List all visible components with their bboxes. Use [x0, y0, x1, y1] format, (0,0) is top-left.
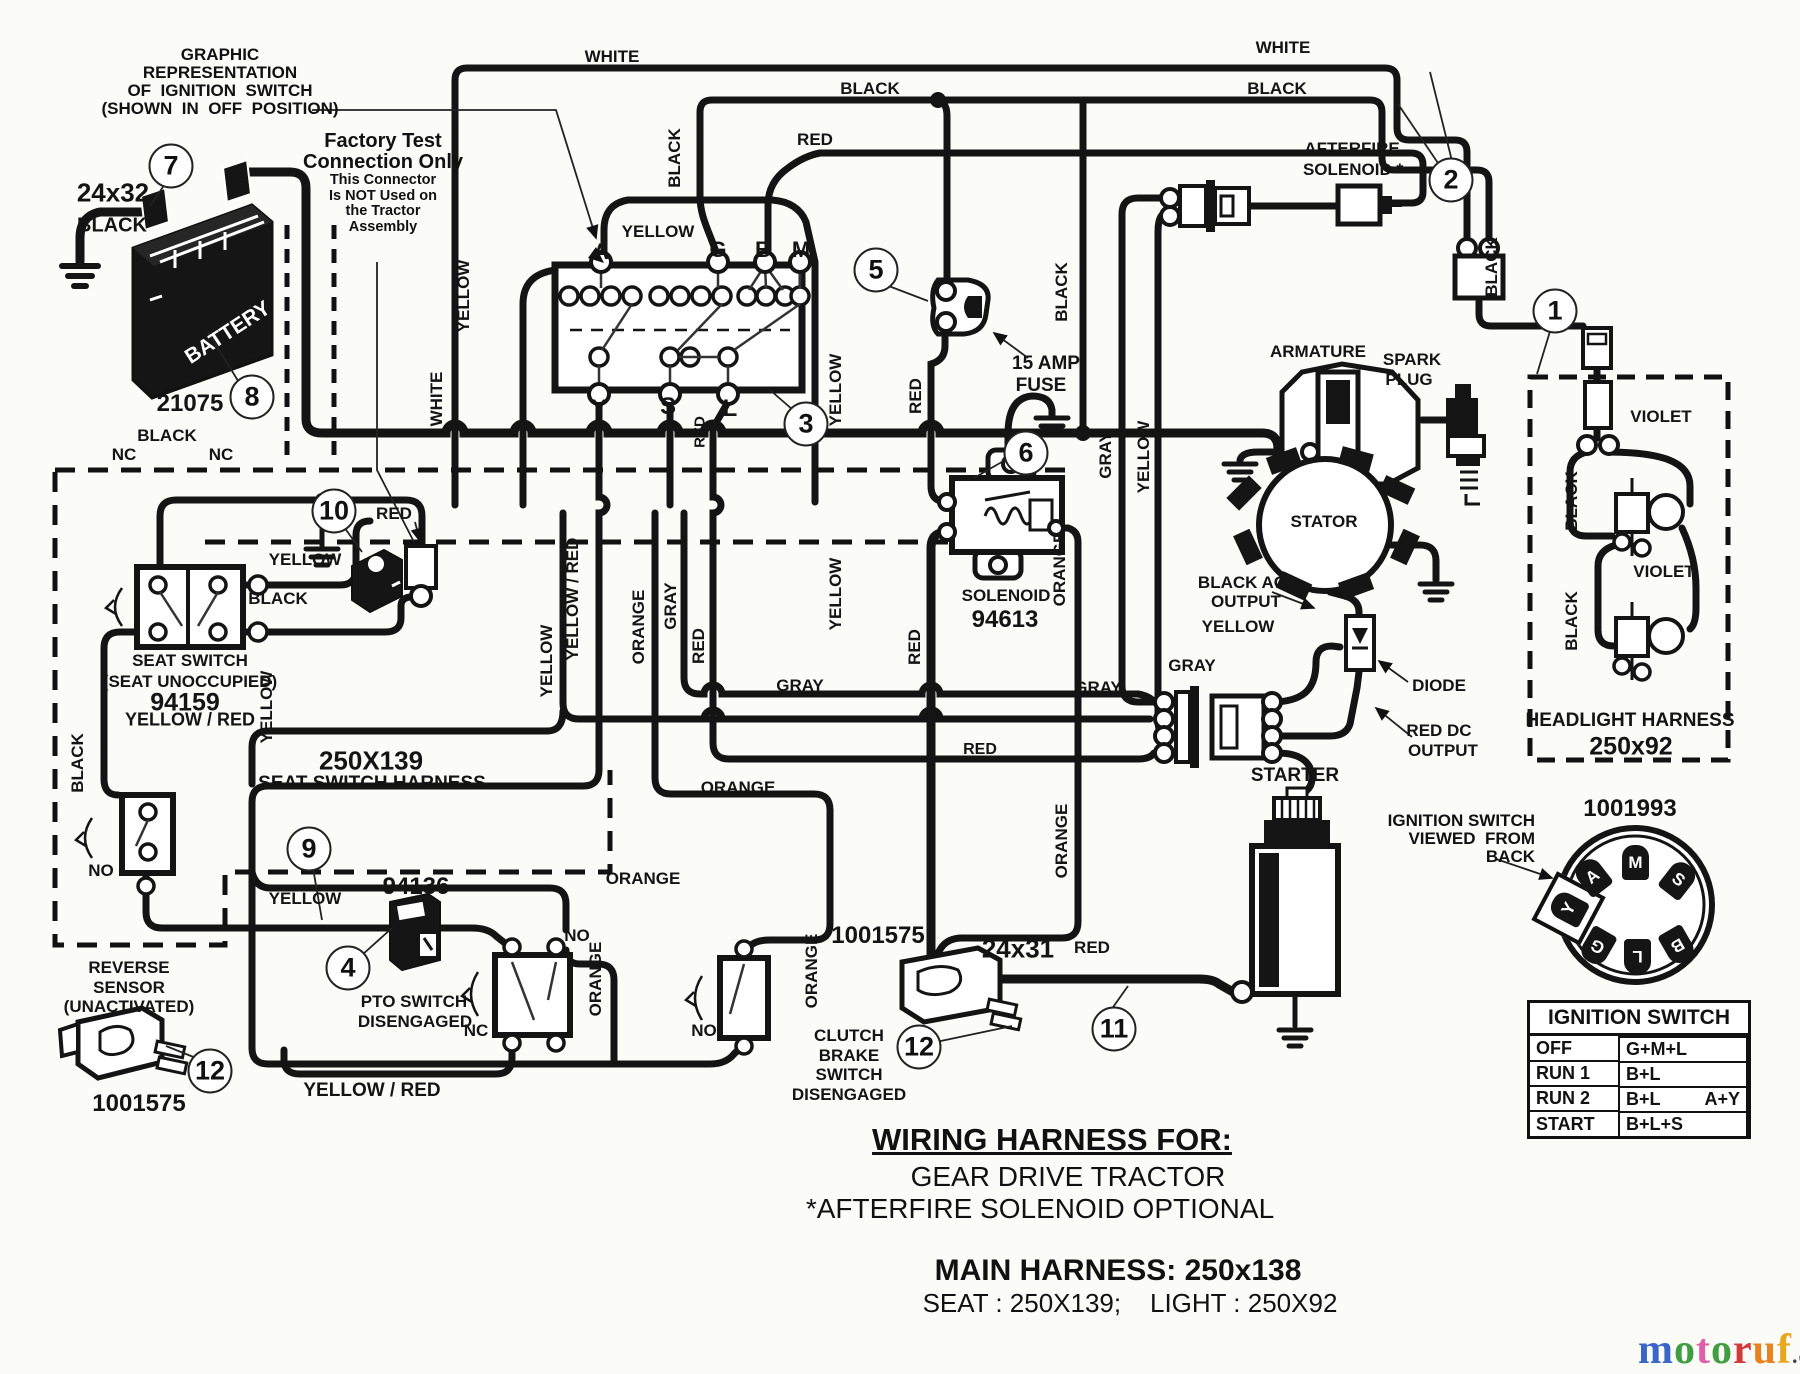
note-line: This Connector [330, 173, 436, 189]
switch-circuit: B+L+S [1620, 1111, 1748, 1136]
wire-label: GRAY [1168, 656, 1216, 676]
wire-label: AFTERFIRE [1304, 139, 1399, 159]
note-line: Connection Only [303, 152, 463, 173]
note-line: IGNITION SWITCH [1388, 812, 1535, 830]
callout-10: 10 [312, 489, 357, 534]
wire-label: NC [112, 445, 137, 465]
vertical-wire-label: BLACK [665, 128, 685, 188]
table-header: IGNITION SWITCH [1529, 1002, 1750, 1035]
wire-label: RED [797, 130, 833, 150]
callout-1: 1 [1533, 289, 1578, 334]
callout-5: 5 [854, 248, 899, 293]
wire-label: (UNACTIVATED) [64, 997, 195, 1017]
switch-position: RUN 2 [1529, 1086, 1620, 1111]
rear-terminal-L: L [1624, 939, 1651, 974]
wire-label: Y [591, 395, 607, 423]
vertical-wire-label: ORANGE [802, 934, 822, 1009]
callout-8: 8 [230, 375, 275, 420]
vertical-wire-label: ORANGE [1052, 804, 1072, 879]
bundle-connector-graphic [1155, 686, 1281, 768]
wire-label: 250x92 [1589, 733, 1672, 762]
seat-light-harness-line: SEAT : 250X139; LIGHT : 250X92 [923, 1288, 1338, 1319]
wire-label: YELLOW [622, 222, 695, 242]
note-line: REPRESENTATION [143, 64, 297, 82]
wire-label: RED [376, 504, 412, 524]
wire-label: SOLENOID [962, 586, 1051, 606]
wire-label: REVERSE [88, 958, 169, 978]
wire-label: 24x32 [77, 178, 149, 209]
wire-label: BLACK AC [1198, 573, 1286, 593]
wire-label: ORANGE [701, 778, 776, 798]
wire-label: PTO SWITCH [361, 992, 467, 1012]
wire-label: BLACK [77, 215, 147, 238]
headlight-bulb-1 [1614, 478, 1683, 556]
callout-6: 6 [1004, 431, 1049, 476]
wire-label: GRAY [1074, 678, 1122, 698]
wire-label: DIODE [1412, 676, 1466, 696]
vertical-wire-label: RED [689, 628, 709, 664]
callout-11: 11 [1092, 1007, 1137, 1052]
wire-label: OUTPUT [1408, 741, 1478, 761]
switch-position: OFF [1529, 1035, 1620, 1062]
wire-label: NO [88, 861, 114, 881]
headlight-bulb-2 [1614, 602, 1683, 680]
wire-label: 1001575 [831, 922, 924, 950]
vertical-wire-label: YELLOW [826, 558, 846, 631]
starter-graphic [1232, 788, 1338, 1002]
wire-label: NO [691, 1021, 717, 1041]
wire-label: CLUTCH [814, 1026, 884, 1046]
vertical-wire-label: YELLOW [1134, 421, 1154, 494]
vertical-wire-label: BLACK [1562, 471, 1582, 531]
wire-label: STARTER [1251, 765, 1339, 787]
harness-subtitle-2: *AFTERFIRE SOLENOID OPTIONAL [806, 1193, 1274, 1225]
wire-label: BLACK [137, 426, 197, 446]
motoruf-watermark: motoruf.de [1638, 1326, 1800, 1374]
diode-graphic [1346, 616, 1374, 670]
wire-label: SEAT SWITCH HARNESS [258, 773, 486, 795]
wire-label: HEADLIGHT HARNESS [1525, 710, 1734, 732]
switch-circuit: B+L [1620, 1061, 1748, 1086]
wire-label: ARMATURE [1270, 342, 1366, 362]
note-line: Is NOT Used on [329, 189, 437, 205]
wire-label: SEAT SWITCH [132, 651, 248, 671]
vertical-wire-label: GRAY [661, 582, 681, 630]
rear-terminal-M: M [1622, 845, 1649, 880]
callout-12: 12 [188, 1049, 233, 1094]
wire-label: 94613 [972, 606, 1039, 634]
callout-4: 4 [326, 946, 371, 991]
watermark-letter: f [1777, 1327, 1792, 1373]
note-line: GRAPHIC [181, 46, 259, 64]
wire-label: M [792, 237, 810, 263]
vertical-wire-label: ORANGE [1050, 532, 1070, 607]
wire-label: YELLOW [269, 889, 342, 909]
ignition-switch-graphic [555, 247, 810, 404]
wire-label: YELLOW [269, 550, 342, 570]
harness-subtitle-1: GEAR DRIVE TRACTOR [911, 1161, 1226, 1193]
ignition-back-note: IGNITION SWITCH VIEWED FROM BACK [1380, 812, 1535, 866]
vertical-wire-label: WHITE [427, 372, 447, 427]
callout-2: 2 [1429, 158, 1474, 203]
table-row: RUN 2B+LA+Y [1529, 1086, 1750, 1111]
wire-label: 250X139 [319, 746, 423, 777]
wire-label: PLUG [1385, 370, 1432, 390]
wire-label: ORANGE [606, 869, 681, 889]
wire-label: 24x31 [982, 934, 1054, 965]
wire-label: GRAY [776, 676, 824, 696]
wire-gray-bundle [684, 513, 1154, 702]
wire-label: NC [464, 1021, 489, 1041]
wire-label: DISENGAGED [792, 1085, 906, 1105]
wire-label: WHITE [1256, 38, 1311, 58]
wire-label: YELLOW / RED [303, 1080, 440, 1102]
wiring-diagram-page: WHITEBLACKWHITEBLACKREDYELLOW24x32BLACKA… [0, 0, 1800, 1374]
watermark-letter: u [1753, 1327, 1777, 1373]
vertical-wire-label: BLACK [1482, 237, 1502, 297]
wire-yellow-afterfire [1158, 214, 1163, 735]
wire-label: 1001575 [92, 1090, 185, 1118]
headlight-harness-boundary [1530, 377, 1728, 760]
watermark-letter: o [1674, 1327, 1696, 1373]
vertical-wire-label: BLACK [1562, 591, 1582, 651]
callout-7: 7 [149, 144, 194, 189]
wire-label: BLACK [840, 79, 900, 99]
note-line: Factory Test [324, 131, 441, 152]
wire-label: NC [209, 445, 234, 465]
wire-label: STATOR [1290, 512, 1357, 532]
factory-test-note: Factory Test Connection Only This Connec… [308, 131, 458, 235]
wire-label: RED DC [1406, 721, 1471, 741]
fuse-graphic [933, 280, 989, 334]
wire-label: L [723, 395, 738, 423]
switch-position: RUN 1 [1529, 1061, 1620, 1086]
wire-label: 94136 [383, 873, 450, 901]
vertical-wire-label: RED [692, 416, 709, 448]
switch-circuit: B+LA+Y [1620, 1086, 1748, 1111]
wire-label: BRAKE [819, 1046, 879, 1066]
wire-label: SENSOR [93, 978, 165, 998]
vertical-wire-label: RED [906, 378, 926, 414]
wire-label: 15 AMP [1012, 353, 1080, 375]
wire-label: SWITCH [815, 1065, 882, 1085]
ignition-note: GRAPHIC REPRESENTATION OF IGNITION SWITC… [120, 46, 320, 118]
wire-label: B [755, 237, 771, 263]
wire-label: S [660, 393, 676, 421]
vertical-wire-label: GRAY [1096, 431, 1116, 479]
callout-9: 9 [287, 827, 332, 872]
wire-label: VIOLET [1633, 562, 1694, 582]
note-line: Assembly [349, 220, 418, 236]
wire-label: VIOLET [1630, 407, 1691, 427]
wire-label: RED [963, 741, 997, 759]
wire-label: FUSE [1016, 375, 1067, 397]
note-line: the Tractor [346, 204, 421, 220]
wire-label: OUTPUT [1211, 592, 1281, 612]
table-row: OFFG+M+L [1529, 1035, 1750, 1062]
watermark-letter: m [1638, 1327, 1674, 1373]
table-row: STARTB+L+S [1529, 1111, 1750, 1138]
reverse-sensor-graphic [60, 1008, 187, 1078]
factory-test-connector-graphic [406, 546, 436, 606]
wire-label: RED [1074, 938, 1110, 958]
vertical-wire-label: ORANGE [629, 590, 649, 665]
wire-label: YELLOW [1202, 617, 1275, 637]
switch-position: START [1529, 1111, 1620, 1138]
vertical-wire-label: YELLOW / RED [563, 538, 583, 661]
spark-plug-graphic [1446, 384, 1484, 504]
harness-title: WIRING HARNESS FOR: [872, 1122, 1232, 1158]
vertical-wire-label: YELLOW [537, 625, 557, 698]
note-line: VIEWED FROM [1408, 830, 1535, 848]
callout-12: 12 [897, 1025, 942, 1070]
wire-label: WHITE [585, 47, 640, 67]
vertical-wire-label: YELLOW [257, 671, 277, 744]
note-line: BACK [1486, 848, 1535, 866]
vertical-wire-label: YELLOW [454, 260, 474, 333]
watermark-letter: o [1711, 1327, 1733, 1373]
wire-label: SPARK [1383, 350, 1441, 370]
note-line: OF IGNITION SWITCH [127, 82, 312, 100]
wire-label: BLACK [1247, 79, 1307, 99]
wire-label: SOLENOID * [1303, 160, 1403, 180]
wire-label: YELLOW / RED [125, 710, 255, 731]
watermark-letter: r [1733, 1327, 1753, 1373]
wire-label: A [593, 239, 609, 265]
vertical-wire-label: ORANGE [586, 942, 606, 1017]
vertical-wire-label: YELLOW [826, 354, 846, 427]
ignition-switch-table: IGNITION SWITCH OFFG+M+LRUN 1B+LRUN 2B+L… [1527, 1000, 1751, 1139]
switch-circuit: G+M+L [1620, 1036, 1748, 1061]
wire-label: DISENGAGED [358, 1012, 472, 1032]
main-harness-title: MAIN HARNESS: 250x138 [935, 1254, 1302, 1288]
vertical-wire-label: RED [905, 629, 925, 665]
wire-label: BLACK [248, 589, 308, 609]
wire-label: G [709, 237, 726, 263]
watermark-letter: t [1696, 1327, 1711, 1373]
callout-3: 3 [784, 402, 829, 447]
vertical-wire-label: BLACK [68, 733, 88, 793]
table-row: RUN 1B+L [1529, 1061, 1750, 1086]
vertical-wire-label: BLACK [1052, 262, 1072, 322]
wire-label: 21075 [157, 390, 224, 418]
pto-connector-graphic [390, 894, 440, 970]
wire-label: 1001993 [1583, 795, 1676, 823]
note-line: (SHOWN IN OFF POSITION) [101, 100, 338, 118]
table-body: OFFG+M+LRUN 1B+LRUN 2B+LA+YSTARTB+L+S [1529, 1035, 1750, 1138]
watermark-suffix: .de [1792, 1343, 1800, 1368]
